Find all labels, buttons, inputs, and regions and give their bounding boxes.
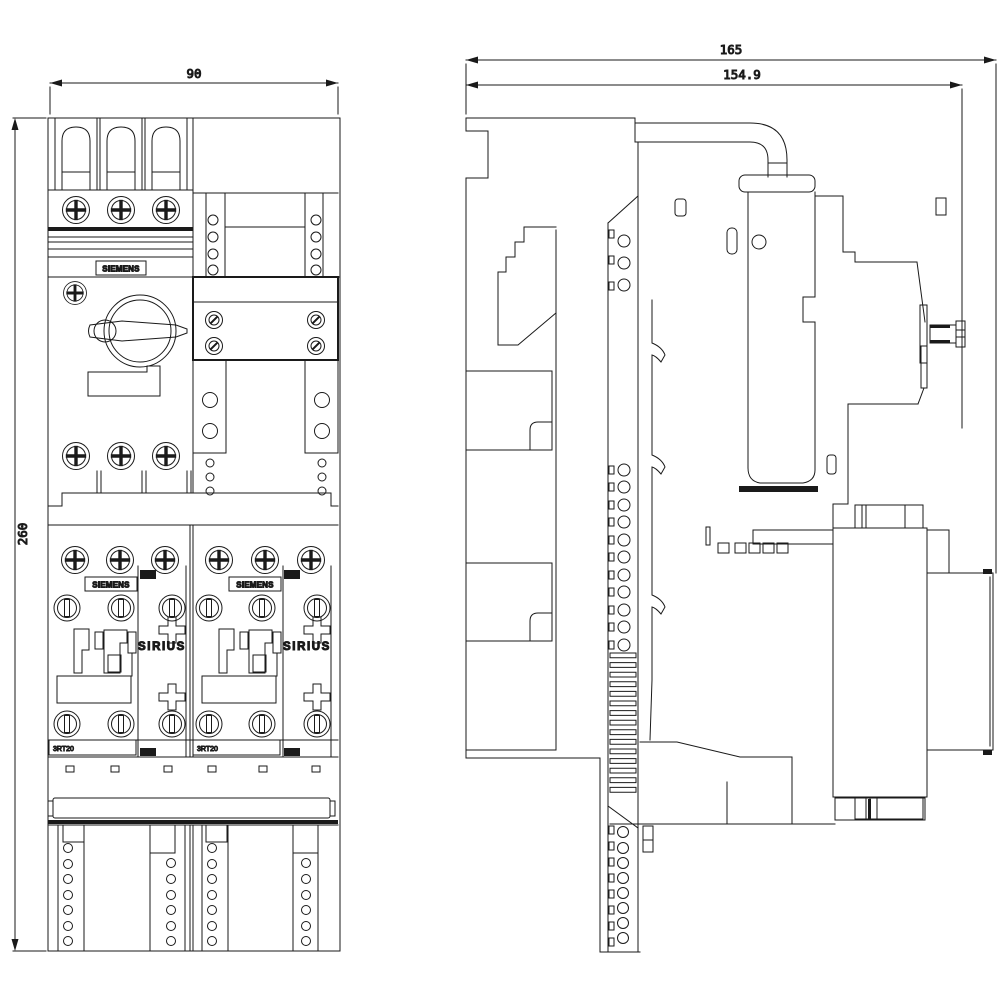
terminal-screw-icon: [63, 197, 90, 224]
dim-arrow-left: [50, 80, 62, 87]
dim-height-260: 260: [12, 118, 47, 951]
dim-depth-154-9: 154.9: [466, 67, 962, 428]
reset-screw: [64, 282, 87, 305]
contactor-left-brand-text: SIEMENS: [92, 581, 130, 590]
contactor-coil-terminals-bottom: [54, 711, 330, 737]
clip-mark: [140, 748, 156, 756]
function-module-tabs: [159, 617, 330, 710]
device-outline: [48, 118, 340, 951]
dim-width-90: 90: [50, 66, 338, 114]
mounting-feet: [48, 825, 338, 951]
breaker-load-terminals: [63, 443, 180, 470]
base-strip-ticks: [66, 766, 320, 772]
front-view: 90 260: [12, 66, 341, 951]
dim-depth-165: 165: [466, 42, 996, 573]
contactor-right-type-text: 3RT20: [197, 746, 218, 753]
handle-shaft-side: [706, 196, 965, 553]
base-rail: [48, 798, 338, 824]
snap-clip-profile: [610, 300, 835, 852]
contactor-left-detail: [57, 629, 136, 703]
contactor-right-brand-label: SIEMENS: [229, 577, 281, 591]
contactor-coil-terminals-top: [54, 595, 330, 621]
mounting-plate-profile: [466, 118, 635, 952]
aux-contact-column: [193, 118, 338, 495]
rotary-handle: [89, 295, 188, 367]
technical-drawing-page: 90 260: [0, 0, 1000, 1000]
contactor-right-detail: [202, 629, 281, 703]
breaker-brand-label: SIEMENS: [96, 261, 146, 275]
dim-arrow-right: [326, 80, 338, 87]
perforated-rail: [600, 142, 640, 952]
contactor-left-series-label: SIRIUS: [138, 641, 186, 653]
dim-height-label: 260: [15, 523, 30, 546]
clip-mark: [284, 570, 300, 579]
breaker-top-terminals: [48, 190, 193, 231]
clip-mark: [140, 570, 156, 579]
breaker-vent-stripes: [48, 237, 193, 257]
contactor-right-brand-text: SIEMENS: [236, 581, 274, 590]
vent-comb: [610, 653, 636, 792]
handle-lever: [89, 321, 188, 341]
terminal-screw-icon: [153, 197, 180, 224]
contactor-side-body: [833, 505, 993, 820]
clip-mark: [284, 748, 300, 756]
dim-165-label: 165: [720, 42, 743, 57]
breaker-brand-text: SIEMENS: [102, 265, 140, 274]
connection-link: [635, 118, 787, 177]
dimension-drawing: 90 260: [0, 0, 1000, 1000]
line-terminal-pins: [55, 118, 187, 190]
contactor-left-type-label: 3RT20: [49, 740, 136, 755]
stair-step-detail: [498, 227, 556, 345]
dim-width-label: 90: [186, 66, 201, 81]
mounting-foot: [835, 798, 925, 820]
rating-label-window: [88, 366, 160, 396]
contactor-right-type-label: 3RT20: [193, 740, 280, 755]
contactor-right-series-label: SIRIUS: [283, 641, 331, 653]
contactor-left-type-text: 3RT20: [53, 746, 74, 753]
terminal-cover-front: [927, 573, 993, 750]
breaker-side-body: [675, 175, 818, 492]
din-rail-holes: [64, 844, 311, 946]
contactor-left-brand-label: SIEMENS: [85, 577, 137, 591]
dim-154-9-label: 154.9: [723, 67, 761, 82]
side-view: 165 154.9: [466, 42, 996, 952]
terminal-screw-icon: [108, 197, 135, 224]
